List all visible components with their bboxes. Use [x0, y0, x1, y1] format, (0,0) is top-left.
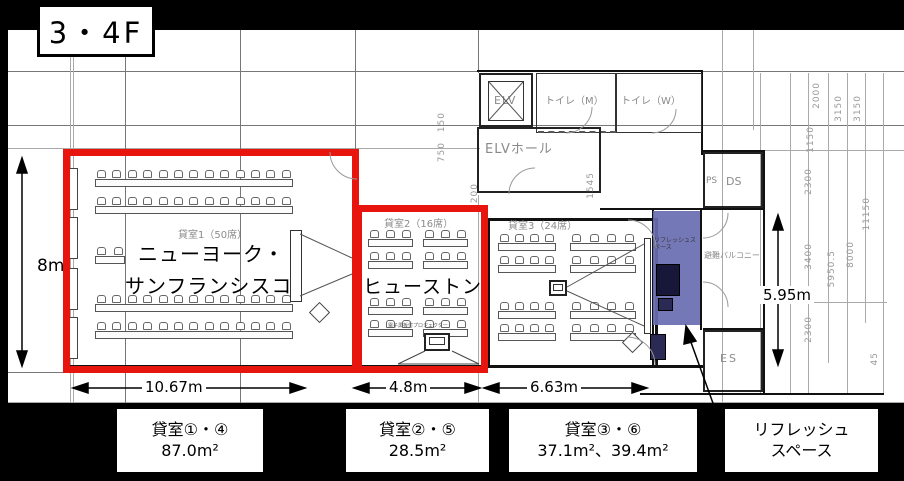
wing-right-wall	[763, 150, 765, 395]
elevator-hall-room	[477, 127, 601, 193]
ps-label: PS	[706, 176, 717, 186]
grid-dim-label: 3150	[834, 95, 844, 122]
appliance-icon	[650, 334, 666, 360]
floor-title: 3・4F	[37, 4, 155, 57]
grid-dim-label: 1545	[586, 172, 596, 199]
dim-5-95m: 5.95m	[760, 286, 814, 304]
desk-row	[498, 256, 556, 273]
grid-dim-label: 2300	[804, 316, 814, 343]
desk-row	[570, 256, 636, 273]
grid-line	[8, 125, 904, 126]
legend-refresh: リフレッシュ スペース	[723, 407, 880, 474]
room2-name: ヒューストン	[363, 272, 482, 299]
grid-line	[8, 372, 64, 373]
room1-name-line1: ニューヨーク・	[138, 238, 285, 267]
toilet-m-label: トイレ（M）	[545, 92, 604, 107]
room1-name-line2: サンフランシスコ	[125, 270, 292, 299]
grid-dim-label: 5950.5	[827, 250, 837, 288]
room3-plan-label: 貸室3（24席）	[508, 217, 577, 232]
grid-line	[790, 73, 791, 395]
grid-dim-label: 8000	[846, 241, 856, 268]
grid-line	[847, 73, 848, 395]
refresh-space-plan-label: リフレッシュスペース	[654, 238, 699, 252]
grid-line	[760, 150, 904, 151]
legend-room1: 貸室①・④ 87.0m²	[115, 407, 265, 474]
core-top-wall	[477, 70, 703, 72]
legend-refresh-line2: スペース	[770, 441, 832, 462]
dim-4-8m: 4.8m	[386, 378, 430, 396]
balcony-top-wall	[703, 208, 765, 210]
grid-dim-label: 3150	[853, 95, 863, 122]
dim-8m: 8m	[34, 256, 67, 276]
toilet-w-label: トイレ（W）	[621, 92, 681, 107]
legend-room3: 貸室③・⑥ 37.1m²、39.4m²	[507, 407, 699, 474]
wing-bottom-wall	[640, 393, 884, 395]
room3-screen	[644, 238, 651, 334]
grid-dim-label: 2000	[812, 82, 822, 109]
desk-row	[498, 234, 556, 251]
balcony-label: 避難バルコニー	[704, 250, 760, 261]
grid-line	[883, 73, 884, 395]
elevator-label: ELV	[494, 94, 516, 107]
grid-line	[808, 73, 809, 395]
legend-room3-title: 貸室③・⑥	[565, 420, 642, 441]
sink-icon	[658, 298, 673, 311]
legend-room1-area: 87.0m²	[161, 441, 219, 462]
grid-dim-label: 45	[870, 352, 880, 365]
desk-row	[570, 234, 636, 251]
ds-label: DS	[726, 175, 741, 188]
grid-dim-label: 1150	[806, 126, 816, 153]
legend-room1-title: 貸室①・④	[152, 420, 229, 441]
vending-machine-icon	[656, 264, 680, 296]
legend-room2: 貸室②・⑤ 28.5m²	[344, 407, 491, 474]
legend-room2-area: 28.5m²	[389, 441, 447, 462]
grid-dim-label: 2300	[804, 168, 814, 195]
grid-dim-label: 750	[437, 142, 447, 162]
grid-line	[8, 402, 904, 403]
desk-row	[498, 302, 556, 319]
grid-line	[753, 30, 754, 130]
dim-6-63m: 6.63m	[527, 378, 581, 396]
grid-line	[828, 73, 829, 363]
room3-projector	[549, 280, 567, 296]
dim-10-67m: 10.67m	[142, 378, 206, 396]
legend-room2-title: 貸室②・⑤	[379, 420, 456, 441]
refresh-right-wall	[700, 210, 702, 330]
legend-room3-area: 37.1m²、39.4m²	[537, 441, 668, 462]
grid-dim-label: 3400	[804, 243, 814, 270]
elevator-hall-label: ELVホール	[485, 138, 553, 157]
grid-dim-label: 150	[437, 112, 447, 132]
desk-row	[570, 302, 636, 319]
grid-line	[8, 71, 904, 72]
floor-plan-slide: リフレッシュスペース ELV トイレ（M） トイレ（W） ELVホール PS D…	[0, 0, 904, 481]
desk-row	[498, 324, 556, 341]
es-label: ES	[720, 352, 738, 365]
legend-refresh-line1: リフレッシュ	[753, 420, 849, 441]
grid-line	[478, 30, 479, 73]
grid-dim-label: 11150	[862, 197, 872, 231]
